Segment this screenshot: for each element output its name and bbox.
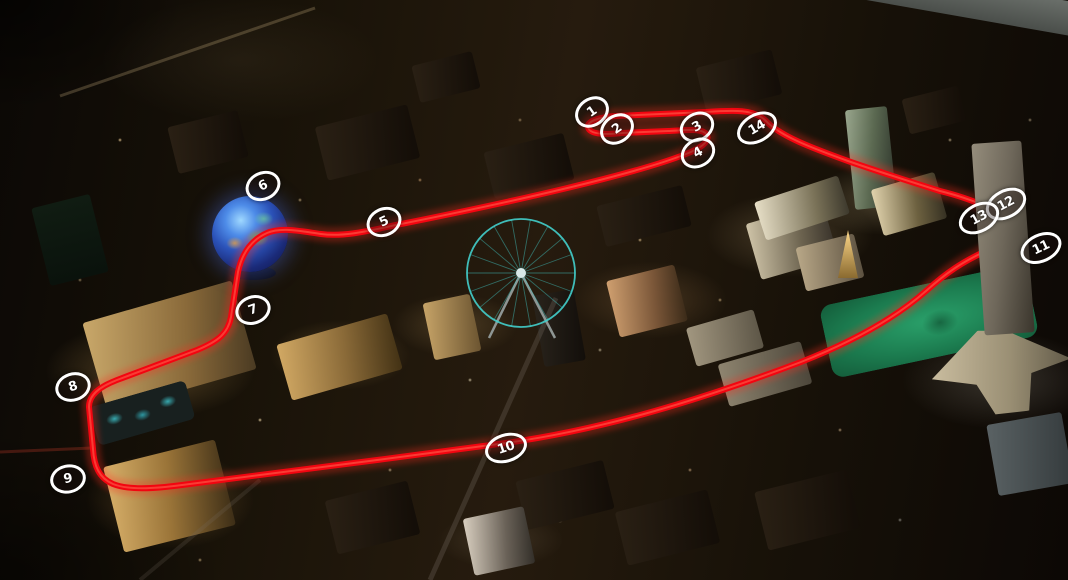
turn-11-marker: 11: [1015, 226, 1066, 270]
turn-10-marker: 10: [481, 428, 531, 469]
turn-7-marker: 7: [231, 290, 275, 330]
turn-5-marker: 5: [362, 201, 407, 242]
turn-14-marker: 14: [731, 105, 783, 152]
turn-6-marker: 6: [241, 165, 286, 206]
turn-markers-layer: 1234567891011121314: [0, 0, 1068, 580]
turn-9-marker: 9: [47, 461, 88, 497]
turn-8-marker: 8: [51, 368, 94, 407]
las-vegas-circuit-aerial-map: 1234567891011121314: [0, 0, 1068, 580]
